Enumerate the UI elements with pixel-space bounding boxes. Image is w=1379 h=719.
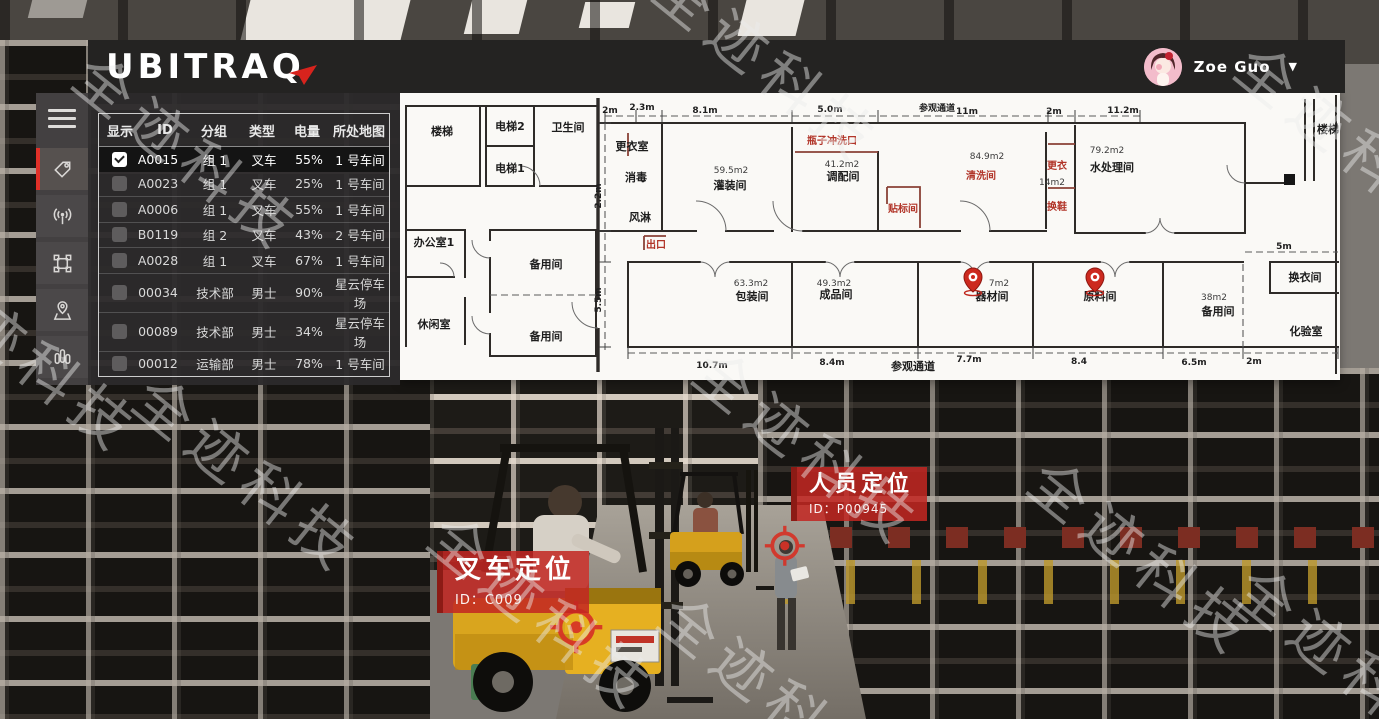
sidebar-item-map[interactable]	[36, 289, 88, 331]
cell-map: 1 号车间	[331, 200, 389, 219]
cell-id: 00012	[127, 356, 189, 371]
svg-text:备用间: 备用间	[529, 257, 563, 271]
svg-text:5.0m: 5.0m	[817, 105, 842, 115]
svg-text:8.4: 8.4	[1071, 357, 1087, 367]
svg-text:5m: 5m	[1276, 242, 1292, 252]
device-table: 显示 ID 分组 类型 电量 所处地图 A0015组 1叉车55%1 号车间A0…	[98, 113, 390, 377]
cell-type: 叉车	[241, 150, 287, 169]
svg-text:8.1m: 8.1m	[692, 106, 717, 116]
svg-text:5.5m: 5.5m	[594, 287, 604, 312]
svg-text:卫生间: 卫生间	[552, 120, 585, 134]
row-checkbox[interactable]	[112, 253, 127, 268]
cell-group: 组 1	[189, 251, 241, 270]
map-pin-icon	[51, 299, 74, 322]
svg-text:换鞋: 换鞋	[1047, 200, 1067, 213]
row-checkbox[interactable]	[112, 227, 127, 242]
svg-text:10.7m: 10.7m	[696, 361, 728, 371]
cell-battery: 55%	[287, 152, 331, 167]
cell-battery: 25%	[287, 176, 331, 191]
app-root: 人员定位 ID：P00945 叉车定位 ID：C009 楼梯电梯2电梯1卫生间办…	[0, 0, 1379, 719]
svg-text:出口: 出口	[646, 238, 666, 251]
crosshair-marker[interactable]	[764, 525, 806, 567]
cell-map: 星云停车场	[331, 274, 389, 312]
svg-text:6.5m: 6.5m	[1181, 358, 1206, 368]
svg-text:备用间: 备用间	[529, 329, 563, 343]
avatar[interactable]	[1144, 48, 1182, 86]
svg-text:包装间: 包装间	[735, 289, 769, 303]
cell-battery: 55%	[287, 202, 331, 217]
svg-text:楼梯: 楼梯	[431, 124, 453, 138]
sliders-icon	[51, 346, 74, 369]
table-row[interactable]: 00034技术部男士90%星云停车场	[99, 273, 389, 312]
svg-text:14m2: 14m2	[1039, 178, 1065, 188]
area-select-icon	[51, 252, 74, 275]
row-checkbox[interactable]	[112, 202, 127, 217]
floorplan-panel: 楼梯电梯2电梯1卫生间办公室1休闲室备用间备用间更衣室消毒风淋灌装间59.5m2…	[400, 88, 1340, 380]
user-name[interactable]: Zoe Guo	[1194, 58, 1271, 76]
table-row[interactable]: 00012运输部男士78%1 号车间	[99, 351, 389, 377]
cell-id: B0119	[127, 227, 189, 242]
cell-group: 技术部	[189, 322, 241, 341]
svg-text:7m2: 7m2	[989, 279, 1009, 289]
cell-group: 运输部	[189, 354, 241, 373]
map-location-pin[interactable]	[964, 268, 982, 296]
cell-group: 技术部	[189, 283, 241, 302]
svg-text:38m2: 38m2	[1201, 293, 1227, 303]
cell-id: 00034	[127, 285, 189, 300]
cell-type: 男士	[241, 354, 287, 373]
svg-text:79.2m2: 79.2m2	[1090, 146, 1125, 156]
sidebar-item-signal[interactable]	[36, 195, 88, 237]
cell-id: 00089	[127, 324, 189, 339]
svg-text:59.5m2: 59.5m2	[714, 166, 749, 176]
app-logo: UBITRAQ	[88, 47, 317, 87]
cell-group: 组 1	[189, 150, 241, 169]
cell-type: 叉车	[241, 225, 287, 244]
tag-icon	[51, 158, 74, 181]
col-type: 类型	[239, 121, 285, 140]
badge-id: ID：P00945	[809, 500, 913, 517]
svg-text:84.9m2: 84.9m2	[970, 152, 1005, 162]
hamburger-menu-button[interactable]	[36, 93, 88, 143]
cell-battery: 78%	[287, 356, 331, 371]
svg-text:办公室1: 办公室1	[414, 235, 455, 249]
svg-text:调配间: 调配间	[827, 169, 860, 183]
cell-id: A0015	[127, 152, 189, 167]
device-list-panel: 显示 ID 分组 类型 电量 所处地图 A0015组 1叉车55%1 号车间A0…	[88, 93, 400, 385]
svg-text:2.3m: 2.3m	[629, 103, 654, 113]
cell-map: 星云停车场	[331, 313, 389, 351]
cell-group: 组 1	[189, 200, 241, 219]
svg-text:灌装间: 灌装间	[714, 178, 747, 192]
svg-text:消毒: 消毒	[625, 170, 647, 184]
cell-battery: 43%	[287, 227, 331, 242]
svg-text:参观通道: 参观通道	[919, 102, 955, 114]
col-map: 所处地图	[329, 121, 389, 140]
yellow-rack-posts	[780, 560, 1340, 604]
cell-type: 男士	[241, 283, 287, 302]
table-row[interactable]: A0015组 1叉车55%1 号车间	[99, 147, 389, 172]
table-row[interactable]: 00089技术部男士34%星云停车场	[99, 312, 389, 351]
svg-text:水处理间: 水处理间	[1090, 160, 1134, 174]
cell-map: 1 号车间	[331, 354, 389, 373]
sidebar-item-filters[interactable]	[36, 336, 88, 378]
svg-text:63.3m2: 63.3m2	[734, 279, 769, 289]
sidebar-item-tags[interactable]	[36, 148, 88, 190]
table-header-row: 显示 ID 分组 类型 电量 所处地图	[99, 114, 389, 147]
svg-text:8.4m: 8.4m	[819, 358, 844, 368]
svg-text:11.2m: 11.2m	[1107, 106, 1139, 116]
cell-id: A0006	[127, 202, 189, 217]
app-logo-text: UBITRAQ	[106, 47, 305, 87]
svg-text:备用间: 备用间	[1201, 304, 1235, 318]
svg-text:7.7m: 7.7m	[956, 355, 981, 365]
svg-text:风淋: 风淋	[629, 210, 651, 224]
cell-map: 2 号车间	[331, 225, 389, 244]
logo-arrow-icon	[289, 65, 317, 85]
col-battery: 电量	[285, 121, 329, 140]
row-checkbox[interactable]	[112, 176, 127, 191]
person-location-badge: 人员定位 ID：P00945	[791, 467, 927, 521]
svg-text:更衣室: 更衣室	[616, 139, 649, 153]
cell-type: 叉车	[241, 174, 287, 193]
badge-title: 叉车定位	[455, 556, 575, 586]
forklift-small	[650, 462, 775, 602]
svg-text:参观通道: 参观通道	[891, 359, 935, 373]
table-row[interactable]: A0006组 1叉车55%1 号车间	[99, 196, 389, 222]
svg-text:更衣: 更衣	[1047, 159, 1067, 172]
cell-type: 男士	[241, 322, 287, 341]
cell-battery: 67%	[287, 253, 331, 268]
table-row[interactable]: A0028组 1叉车67%1 号车间	[99, 247, 389, 273]
svg-text:清洗间: 清洗间	[966, 169, 996, 182]
svg-text:贴标间: 贴标间	[887, 202, 918, 215]
user-menu[interactable]: Zoe Guo ▼	[1144, 48, 1345, 86]
table-row[interactable]: B0119组 2叉车43%2 号车间	[99, 222, 389, 248]
badge-title: 人员定位	[809, 472, 913, 497]
svg-text:休闲室: 休闲室	[417, 317, 451, 331]
row-checkbox[interactable]	[112, 324, 127, 339]
table-row[interactable]: A0023组 1叉车25%1 号车间	[99, 172, 389, 197]
device-table-rows: A0015组 1叉车55%1 号车间A0023组 1叉车25%1 号车间A000…	[99, 147, 389, 376]
svg-text:成品间: 成品间	[820, 287, 853, 301]
map-location-pin[interactable]	[1086, 268, 1104, 296]
cell-map: 1 号车间	[331, 174, 389, 193]
badge-id: ID：C009	[455, 589, 575, 608]
cell-battery: 90%	[287, 285, 331, 300]
row-checkbox[interactable]	[112, 285, 127, 300]
cell-id: A0023	[127, 176, 189, 191]
cell-battery: 34%	[287, 324, 331, 339]
cell-id: A0028	[127, 253, 189, 268]
svg-text:11m: 11m	[956, 107, 978, 117]
cell-group: 组 1	[189, 174, 241, 193]
sidebar	[36, 93, 88, 385]
top-header: UBITRAQ Zoe Guo ▼	[88, 40, 1345, 93]
svg-text:2.2m: 2.2m	[594, 183, 604, 208]
col-id: ID	[141, 123, 189, 138]
svg-text:电梯1: 电梯1	[495, 161, 525, 175]
col-display: 显示	[99, 121, 141, 140]
svg-text:楼梯: 楼梯	[1317, 122, 1339, 136]
row-checkbox[interactable]	[112, 152, 127, 167]
sidebar-item-area[interactable]	[36, 242, 88, 284]
cell-map: 1 号车间	[331, 150, 389, 169]
rack-red-caps	[772, 527, 1379, 548]
svg-text:化验室: 化验室	[1290, 324, 1323, 338]
row-checkbox[interactable]	[112, 356, 127, 371]
chevron-down-icon[interactable]: ▼	[1289, 60, 1297, 73]
cell-map: 1 号车间	[331, 251, 389, 270]
svg-text:换衣间: 换衣间	[1289, 270, 1322, 284]
floorplan-map: 楼梯电梯2电梯1卫生间办公室1休闲室备用间备用间更衣室消毒风淋灌装间59.5m2…	[400, 88, 1340, 380]
svg-text:49.3m2: 49.3m2	[817, 279, 852, 289]
svg-text:瓶子冲洗口: 瓶子冲洗口	[807, 134, 857, 147]
svg-text:2m: 2m	[602, 106, 618, 116]
cell-group: 组 2	[189, 225, 241, 244]
cell-type: 叉车	[241, 200, 287, 219]
svg-text:2m: 2m	[1046, 107, 1062, 117]
svg-text:2m: 2m	[1246, 357, 1262, 367]
cell-type: 叉车	[241, 251, 287, 270]
signal-icon	[51, 205, 74, 228]
svg-text:41.2m2: 41.2m2	[825, 160, 860, 170]
col-group: 分组	[189, 121, 239, 140]
forklift-location-badge: 叉车定位 ID：C009	[437, 551, 589, 613]
svg-text:电梯2: 电梯2	[495, 119, 525, 133]
